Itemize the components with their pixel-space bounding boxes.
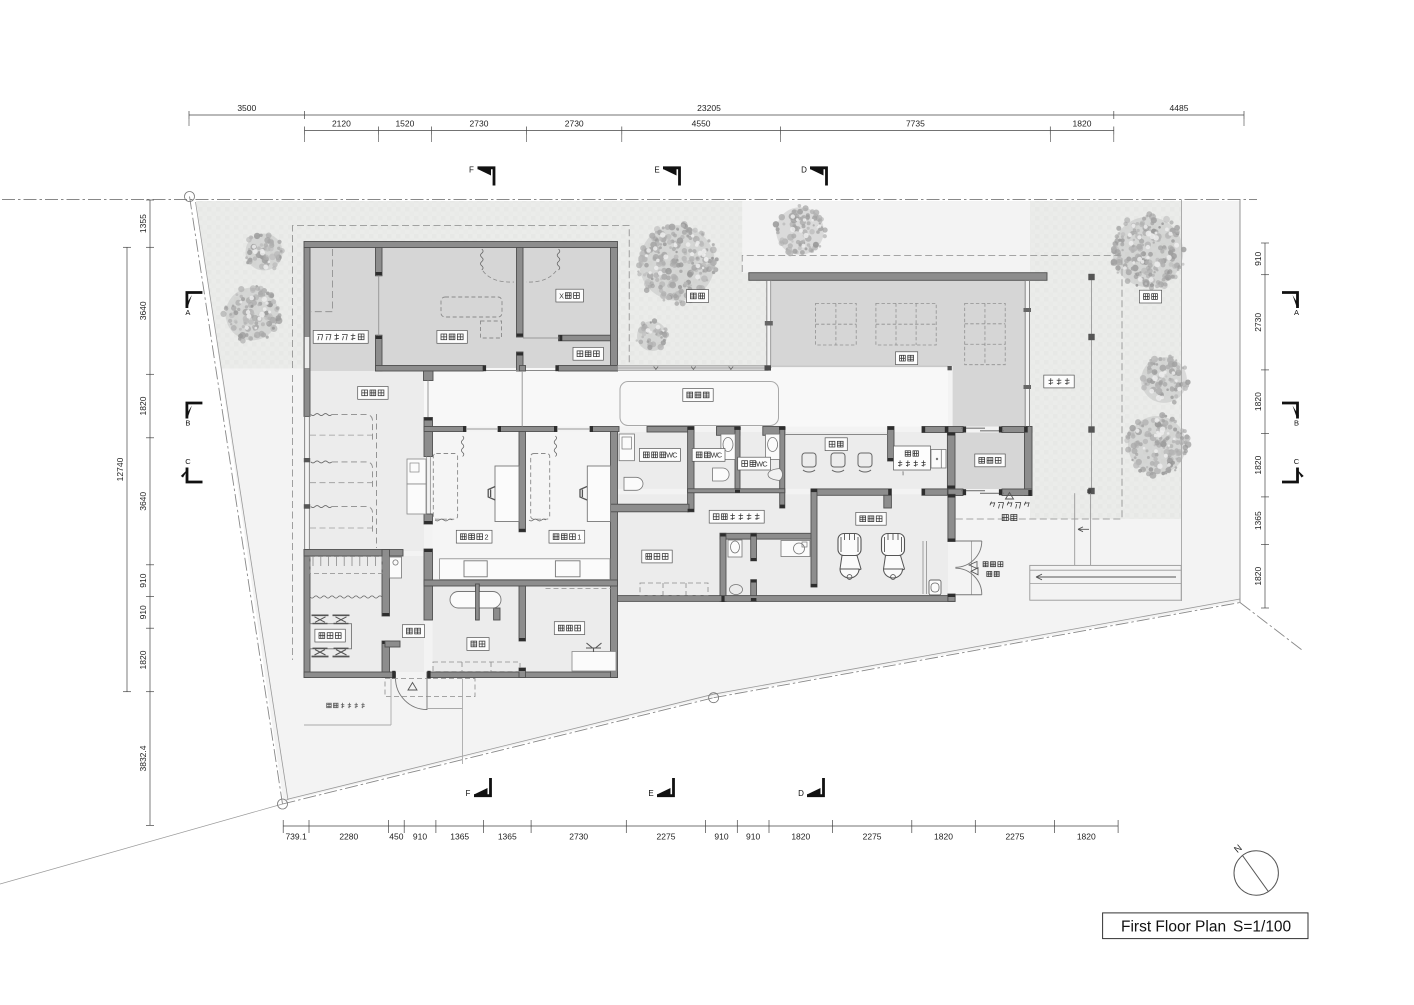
svg-text:2275: 2275 [657, 832, 676, 842]
svg-text:1365: 1365 [498, 832, 517, 842]
svg-text:1365: 1365 [1253, 511, 1263, 530]
svg-text:2730: 2730 [565, 119, 584, 129]
svg-text:1: 1 [577, 532, 581, 541]
svg-text:1820: 1820 [1253, 392, 1263, 411]
svg-text:F: F [469, 166, 474, 175]
svg-text:2730: 2730 [1253, 313, 1263, 332]
svg-text:First Floor Plan: First Floor Plan [1121, 919, 1226, 936]
svg-text:2275: 2275 [863, 832, 882, 842]
svg-text:E: E [654, 166, 659, 175]
svg-text:1820: 1820 [934, 832, 953, 842]
svg-text:B: B [185, 419, 190, 428]
svg-text:1820: 1820 [1073, 119, 1092, 129]
svg-text:3640: 3640 [138, 301, 148, 320]
svg-text:C: C [717, 451, 722, 460]
svg-text:A: A [185, 308, 190, 317]
svg-text:1820: 1820 [791, 832, 810, 842]
svg-text:3832.4: 3832.4 [138, 745, 148, 771]
svg-text:1820: 1820 [138, 396, 148, 415]
svg-text:B: B [1294, 419, 1299, 428]
svg-text:X: X [559, 291, 564, 300]
svg-text:2: 2 [484, 532, 488, 541]
svg-text:4485: 4485 [1170, 103, 1189, 113]
svg-text:F: F [466, 789, 471, 798]
svg-text:1355: 1355 [138, 214, 148, 233]
svg-text:2275: 2275 [1005, 832, 1024, 842]
svg-text:1820: 1820 [1253, 566, 1263, 585]
svg-text:910: 910 [1253, 251, 1263, 265]
svg-text:910: 910 [714, 832, 728, 842]
svg-text:1520: 1520 [395, 119, 414, 129]
svg-text:C: C [185, 457, 191, 466]
svg-text:910: 910 [746, 832, 760, 842]
svg-text:1820: 1820 [1253, 455, 1263, 474]
svg-text:12740: 12740 [115, 457, 125, 481]
svg-text:23205: 23205 [697, 103, 721, 113]
svg-text:2280: 2280 [339, 832, 358, 842]
svg-text:C: C [762, 459, 767, 468]
svg-text:2730: 2730 [470, 119, 489, 129]
svg-text:D: D [798, 789, 804, 798]
svg-text:E: E [648, 789, 653, 798]
svg-text:739.1: 739.1 [285, 832, 307, 842]
svg-text:7735: 7735 [906, 119, 925, 129]
svg-text:D: D [801, 166, 807, 175]
svg-text:3640: 3640 [138, 492, 148, 511]
svg-text:910: 910 [138, 605, 148, 619]
svg-text:2730: 2730 [569, 832, 588, 842]
svg-text:910: 910 [138, 573, 148, 587]
svg-text:2120: 2120 [332, 119, 351, 129]
svg-text:C: C [672, 451, 677, 460]
svg-text:1365: 1365 [450, 832, 469, 842]
svg-text:3500: 3500 [237, 103, 256, 113]
svg-text:4550: 4550 [692, 119, 711, 129]
svg-text:A: A [1294, 308, 1299, 317]
svg-text:450: 450 [389, 832, 403, 842]
svg-text:S=1/100: S=1/100 [1233, 919, 1292, 936]
svg-text:C: C [1294, 457, 1300, 466]
svg-text:1820: 1820 [138, 650, 148, 669]
svg-text:910: 910 [413, 832, 427, 842]
svg-text:1820: 1820 [1077, 832, 1096, 842]
